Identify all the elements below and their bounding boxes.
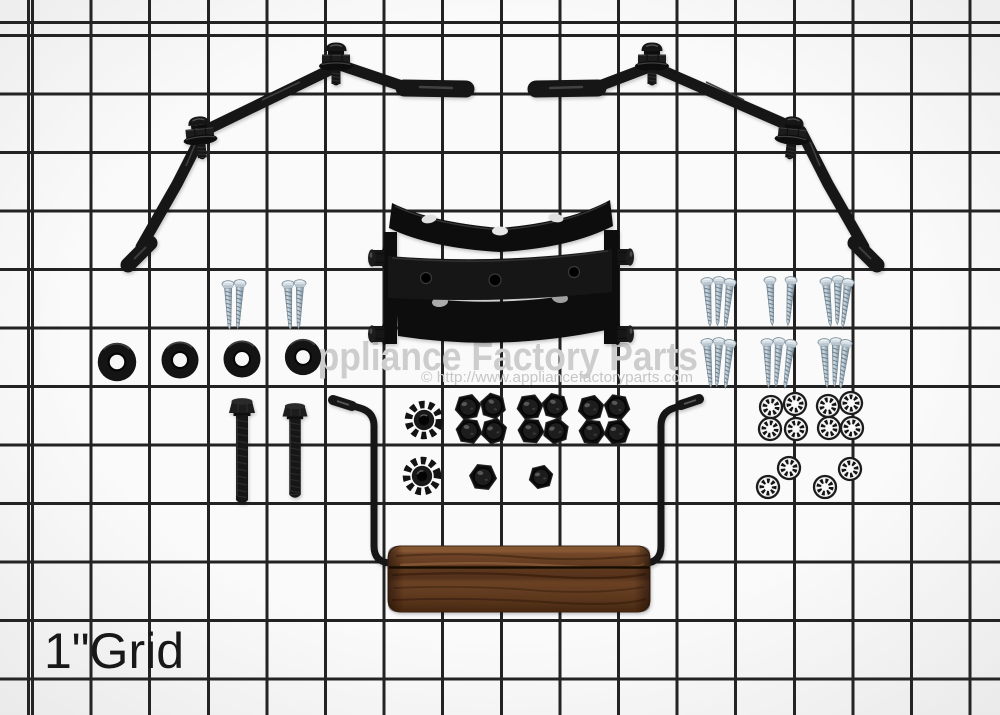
machine-screw [222, 280, 236, 329]
side-bolt [368, 247, 388, 269]
acorn-nut [540, 416, 572, 446]
acorn-nut [516, 394, 545, 420]
star-lock-washer [815, 393, 842, 420]
flat-washer [285, 339, 321, 375]
machine-screws-left [222, 279, 306, 329]
star-lock-washer [836, 412, 867, 443]
flat-washer [162, 342, 199, 379]
hex-bolts [229, 398, 307, 503]
handle-wire [333, 399, 699, 563]
side-bolt [614, 246, 634, 268]
watermark-url: © http://www.appliancefactoryparts.com [421, 369, 693, 386]
side-bolt [368, 323, 388, 345]
acorn-nut [477, 391, 509, 421]
side-bolt [614, 323, 634, 345]
machine-screw [711, 337, 726, 386]
machine-screw [764, 276, 779, 325]
machine-screw [701, 338, 717, 388]
keps-star-nut [406, 402, 443, 439]
keps-nuts [404, 402, 442, 494]
acorn-nut [540, 392, 571, 420]
star-lock-washers [753, 388, 868, 502]
machine-screw [711, 276, 725, 325]
keps-star-nut [404, 458, 440, 494]
star-lock-washer [836, 455, 864, 483]
machine-screw [782, 276, 797, 326]
handle-assembly [333, 399, 699, 612]
acorn-nut [576, 394, 607, 422]
flat-washers [98, 339, 321, 381]
flat-washer [98, 343, 136, 381]
star-lock-washer [776, 455, 802, 481]
acorn-nut [578, 419, 606, 444]
acorn-nut [527, 464, 556, 490]
flat-washer [224, 341, 261, 378]
acorn-nut [602, 419, 632, 446]
machine-screws-right [701, 275, 855, 388]
star-lock-washer [781, 390, 810, 419]
parts-photo-canvas: Appliance Factory Parts © http://www.app… [0, 0, 1000, 715]
acorn-nuts [453, 391, 632, 490]
center-bracket-assembly [368, 200, 634, 345]
machine-screw [701, 277, 716, 327]
machine-screw [282, 280, 297, 329]
wood-handle [388, 546, 650, 612]
star-lock-washer [814, 476, 836, 498]
grid-scale-label: 1"Grid [44, 623, 184, 679]
acorn-nut [602, 394, 632, 421]
machine-screw [770, 337, 785, 387]
hex-bolt [283, 403, 308, 498]
star-lock-washer [760, 396, 782, 418]
star-lock-washer [836, 388, 866, 418]
star-lock-washer [755, 414, 786, 445]
acorn-nut [468, 464, 497, 490]
machine-screw [292, 279, 306, 328]
carriage-bolt-assembly [319, 43, 353, 86]
machine-screw [232, 279, 247, 328]
acorn-nut [453, 393, 483, 421]
watermark: Appliance Factory Parts © http://www.app… [292, 335, 698, 386]
machine-screw [818, 338, 833, 388]
machine-screw [761, 338, 775, 387]
star-lock-washer [753, 472, 783, 502]
carriage-bolt-assembly [635, 43, 669, 86]
acorn-nut [478, 417, 509, 446]
acorn-nut [517, 419, 545, 443]
hex-bolt [229, 398, 255, 503]
acorn-nut [455, 418, 484, 444]
product-photo-scene: Appliance Factory Parts © http://www.app… [0, 0, 1000, 715]
star-lock-washer [783, 416, 808, 441]
star-lock-washer [817, 416, 841, 440]
